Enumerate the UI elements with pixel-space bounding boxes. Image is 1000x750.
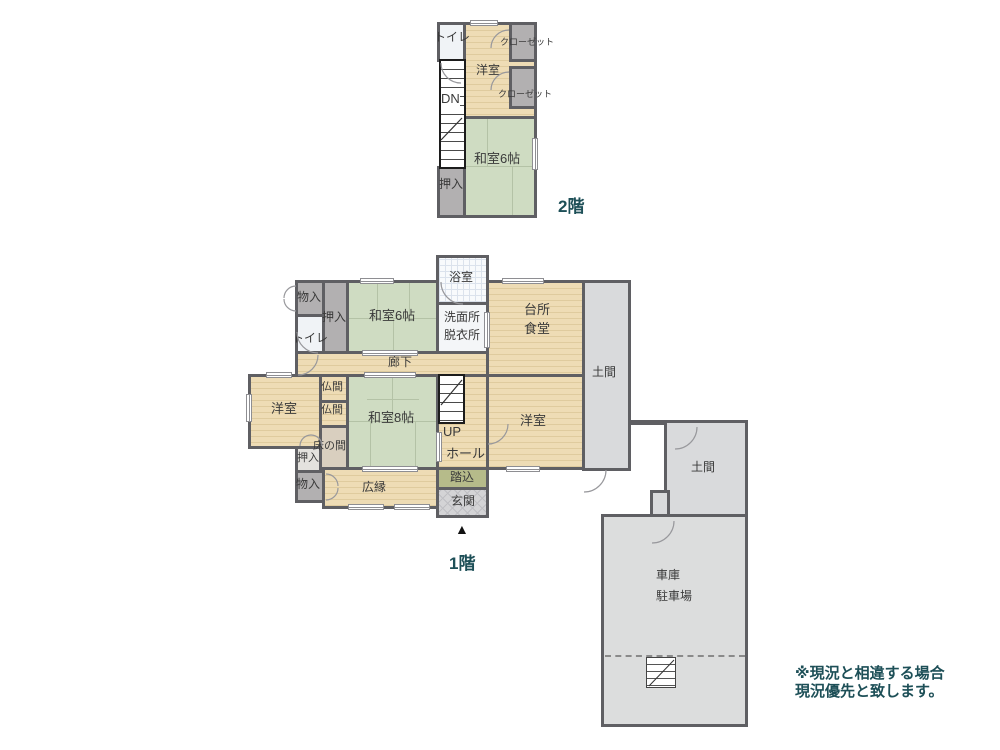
label-1f-kitchen-2: 食堂: [524, 322, 550, 336]
sliding-door: [484, 312, 490, 348]
label-1f-kitchen-1: 台所: [524, 303, 550, 317]
label-1f-bath: 浴室: [449, 271, 473, 284]
window: [266, 372, 292, 378]
label-1f-washroom-1: 洗面所: [444, 311, 480, 324]
label-1f-tatami8: 和室8帖: [368, 411, 414, 425]
label-2f-western: 洋室: [476, 64, 500, 77]
floorplan-canvas: トイレ 洋室 クローゼット クローゼット DN 和室6帖 押入 2階 物入 押入…: [0, 0, 1000, 750]
label-1f-doma: 土間: [592, 366, 616, 379]
label-1f-entrance: 玄関: [451, 495, 475, 508]
window: [394, 504, 430, 510]
sliding-door: [436, 432, 442, 462]
room-garage: [601, 514, 748, 727]
label-1f-oshiire-top: 押入: [322, 311, 346, 324]
label-1f-storage-top: 物入: [297, 291, 321, 304]
label-1f-toilet: トイレ: [292, 332, 328, 345]
label-1f-veranda: 広縁: [362, 481, 386, 494]
disclaimer-line2: 現況優先と致します。: [795, 683, 945, 701]
sliding-door: [364, 372, 416, 378]
stairs-1f-up: [438, 374, 465, 424]
label-garage-1: 車庫: [656, 569, 680, 582]
sliding-door: [362, 466, 418, 472]
label-garage-2: 駐車場: [656, 590, 692, 603]
room-2f-closet-bottom: [509, 66, 537, 109]
label-1f-altar2: 仏間: [321, 405, 343, 417]
label-garage-doma: 土間: [691, 461, 715, 474]
tatami-line: [370, 421, 371, 467]
label-1f-storage-bottom: 物入: [296, 478, 320, 491]
label-2f-toilet: トイレ: [434, 31, 470, 44]
label-1f-western-right: 洋室: [520, 414, 546, 428]
window: [246, 394, 252, 422]
label-2f-closet-bottom: クローゼット: [498, 90, 552, 99]
label-floor2: 2階: [558, 192, 584, 217]
garage-stairs-icon: [646, 657, 676, 688]
window: [502, 278, 544, 284]
label-1f-tokonoma: 床の間: [313, 441, 346, 453]
label-2f-oshiire: 押入: [439, 178, 463, 191]
label-2f-closet-top: クローゼット: [500, 38, 554, 47]
window: [360, 278, 394, 284]
label-1f-tatami6: 和室6帖: [369, 309, 415, 323]
room-2f-oshiire: [437, 166, 466, 218]
wall-doma-connector: [628, 420, 667, 425]
tatami-line: [415, 421, 416, 467]
label-1f-hall: ホール: [446, 447, 485, 461]
window: [532, 138, 538, 170]
sliding-door: [362, 350, 418, 356]
label-1f-altar1: 仏間: [321, 382, 343, 394]
label-1f-fumikomi: 踏込: [450, 471, 474, 484]
label-1f-western-left: 洋室: [271, 402, 297, 416]
label-1f-washroom-2: 脱衣所: [444, 329, 480, 342]
stairs-2f-down: [439, 59, 466, 169]
label-1f-corridor: 廊下: [388, 356, 412, 369]
disclaimer-text: ※現況と相違する場合 現況優先と致します。: [795, 665, 945, 701]
window: [506, 466, 540, 472]
disclaimer-line1: ※現況と相違する場合: [795, 665, 945, 683]
tatami-line: [466, 166, 534, 167]
window: [348, 504, 384, 510]
label-2f-dn: DN: [441, 92, 460, 106]
door-arc: [584, 470, 606, 492]
label-1f-oshiire-left: 押入: [297, 453, 319, 465]
label-2f-tatami6: 和室6帖: [474, 152, 520, 166]
tatami-line: [367, 399, 419, 400]
label-floor1: 1階: [449, 549, 475, 574]
entrance-marker-icon: ▲: [455, 521, 469, 537]
window: [470, 20, 498, 26]
tatami-line: [512, 166, 513, 215]
room-2f-tatami6: [463, 116, 537, 218]
label-1f-up: UP: [443, 425, 461, 439]
